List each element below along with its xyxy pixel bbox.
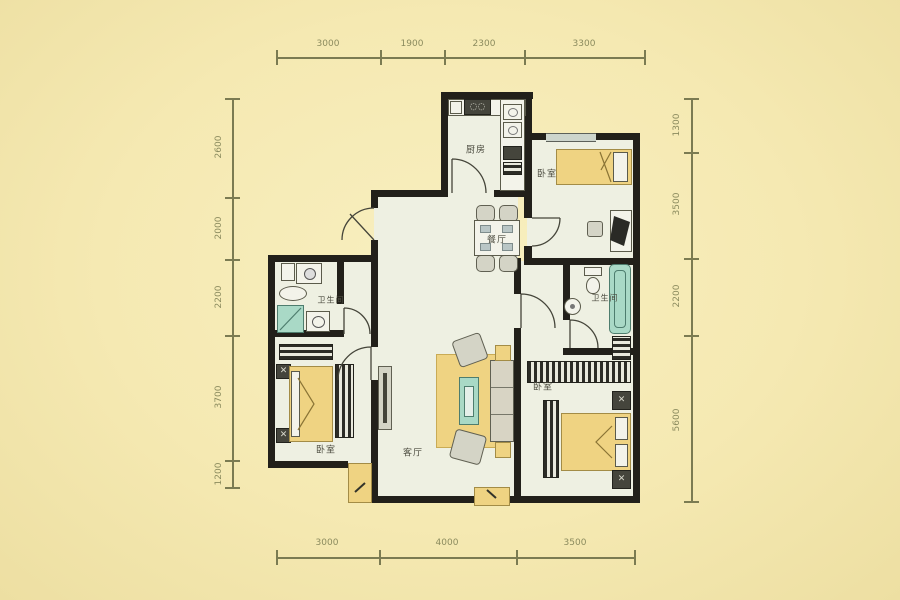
wall: [514, 328, 521, 503]
dining-chair: [499, 255, 518, 272]
wall: [268, 255, 275, 468]
wall: [441, 92, 448, 197]
bath-shelf: [281, 263, 295, 281]
dimension-tick: [276, 550, 278, 565]
wall: [371, 380, 378, 503]
pillow: [615, 417, 628, 440]
wall: [510, 496, 524, 503]
dimension-tick: [644, 50, 646, 65]
wall: [371, 190, 447, 197]
dim-left-2: 2000: [214, 217, 224, 240]
dim-top-2: 1900: [401, 39, 424, 49]
sink-drain: [570, 304, 575, 309]
bay-sill: [474, 487, 510, 506]
cabinet: [612, 336, 631, 360]
toilet-icon: [584, 267, 602, 276]
dimension-tick: [379, 550, 381, 565]
dimension-tick: [516, 550, 518, 565]
sink-basin: [508, 108, 518, 117]
dimension-tick: [634, 550, 636, 565]
dim-left-3: 2200: [214, 286, 224, 309]
dimension-line-left: [232, 98, 234, 489]
dimension-tick: [276, 50, 278, 65]
dimension-tick: [444, 50, 446, 65]
kitchen-cabinet: [450, 101, 462, 114]
desk: [610, 210, 632, 252]
dimension-tick: [225, 460, 240, 462]
dimension-tick: [225, 197, 240, 199]
dimension-tick: [380, 50, 382, 65]
shower-icon: [277, 305, 304, 333]
chair: [587, 221, 603, 237]
pillow: [615, 444, 628, 467]
wardrobe: [335, 364, 354, 438]
dim-bottom-2: 4000: [436, 538, 459, 548]
wall: [268, 461, 348, 468]
sofa: [490, 360, 514, 442]
dim-right-2: 3500: [672, 193, 682, 216]
dimension-tick: [225, 98, 240, 100]
wall: [494, 190, 526, 197]
radiator: [279, 344, 333, 360]
dim-top-3: 2300: [473, 39, 496, 49]
room-label-kitchen: 厨房: [466, 143, 486, 156]
nightstand: ✕: [612, 391, 631, 410]
wall: [633, 133, 640, 503]
wall: [374, 496, 474, 503]
dim-left-4: 3700: [214, 386, 224, 409]
dimension-tick: [225, 335, 240, 337]
room-label-living: 客厅: [403, 446, 423, 459]
dim-top-1: 3000: [317, 39, 340, 49]
dimension-line-right: [691, 98, 693, 503]
kitchen-appliance: [503, 162, 522, 175]
washer-drum: [304, 268, 316, 280]
room-label-bedroom-left: 卧室: [316, 443, 336, 456]
sink-icon: [564, 298, 581, 315]
tv: [383, 373, 387, 423]
kitchen-sink-icon: [503, 122, 522, 138]
sink-icon: [279, 286, 307, 301]
tv-cabinet: [378, 366, 392, 430]
dim-left-1: 2600: [214, 136, 224, 159]
dimension-tick: [684, 258, 699, 260]
room-label-bathroom-left: 卫生间: [318, 295, 345, 306]
pillow: [291, 371, 300, 437]
door-arc: [342, 208, 374, 240]
toilet-icon: [586, 277, 600, 294]
toilet-icon: [306, 311, 330, 332]
dim-top-4: 3300: [573, 39, 596, 49]
dining-chair: [476, 255, 495, 272]
dimension-tick: [225, 487, 240, 489]
dim-bottom-1: 3000: [316, 538, 339, 548]
washing-machine-icon: [296, 263, 322, 284]
wall: [371, 190, 378, 208]
nightstand: ✕: [612, 470, 631, 489]
dim-right-1: 1300: [672, 114, 682, 137]
dim-right-4: 5600: [672, 409, 682, 432]
window: [546, 133, 596, 142]
toilet-bowl: [312, 316, 325, 328]
dimension-tick: [684, 335, 699, 337]
room-label-bathroom-right: 卫生间: [592, 293, 619, 304]
dimension-tick: [225, 259, 240, 261]
dresser: [543, 400, 559, 478]
table-inner: [464, 386, 474, 417]
kitchen-sink-icon: [503, 104, 522, 120]
kitchen-appliance: [503, 146, 522, 160]
room-label-dining: 餐厅: [487, 233, 507, 246]
side-table: [495, 442, 511, 458]
pillow: [613, 152, 628, 182]
wall: [518, 496, 640, 503]
stove-icon: ◌◌: [464, 99, 491, 115]
dimension-line-top: [276, 57, 645, 59]
dim-bottom-3: 3500: [564, 538, 587, 548]
dim-left-5: 1200: [214, 463, 224, 486]
dim-right-3: 2200: [672, 285, 682, 308]
coffee-table: [459, 377, 479, 425]
dimension-tick: [684, 501, 699, 503]
wall: [441, 92, 533, 99]
dimension-line-bottom: [276, 557, 635, 559]
bay-sill: [348, 463, 372, 503]
dimension-tick: [684, 152, 699, 154]
side-table: [495, 345, 511, 361]
wall: [268, 255, 378, 262]
dimension-tick: [684, 98, 699, 100]
dimension-tick: [524, 50, 526, 65]
floor-plan-canvas: 3000 1900 2300 3300 3000 4000 3500 2600 …: [0, 0, 900, 600]
sink-basin: [508, 126, 518, 135]
room-label-bedroom-bottom-right: 卧室: [533, 380, 553, 393]
room-label-bedroom-top-right: 卧室: [537, 167, 557, 180]
